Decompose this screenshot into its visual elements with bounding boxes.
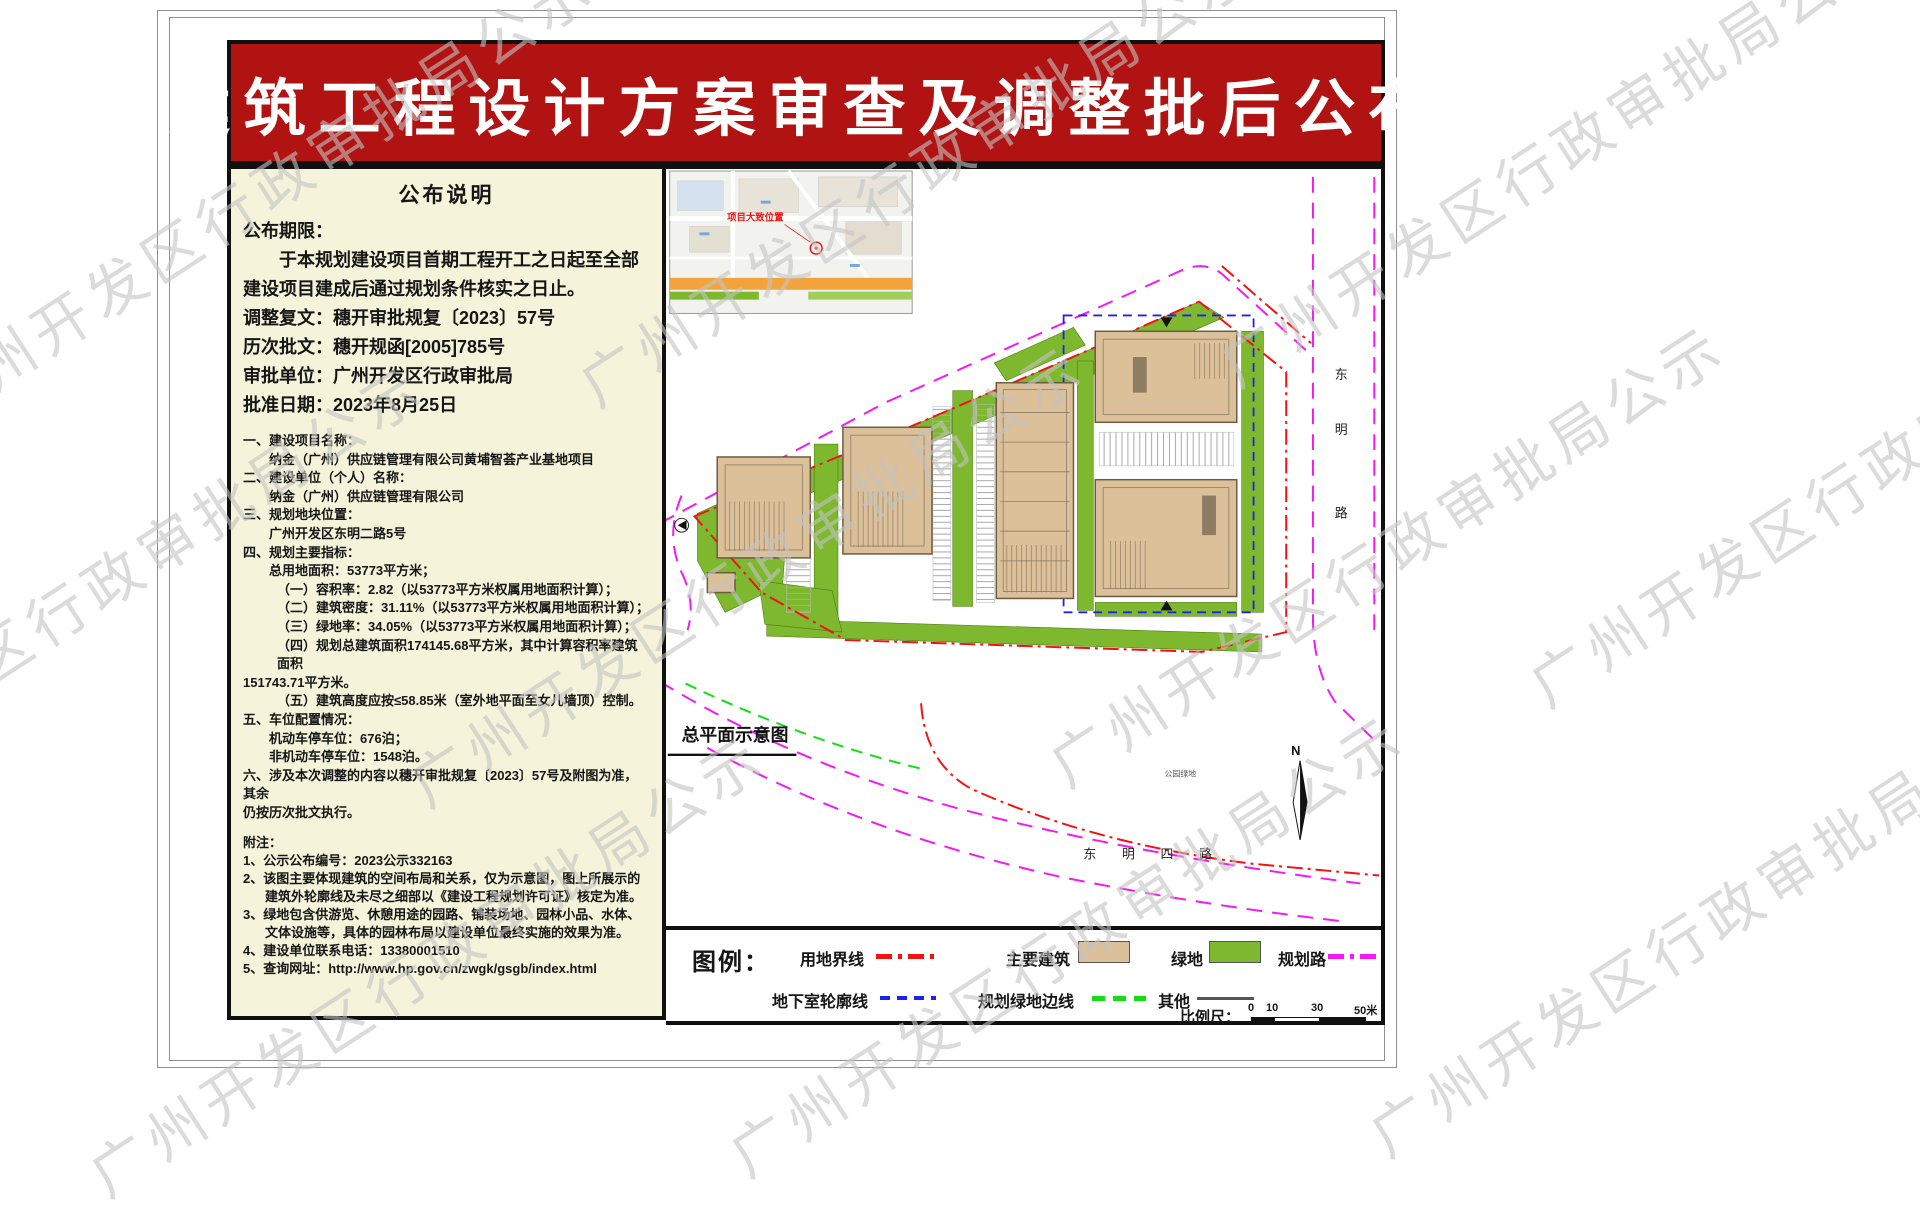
legend-label-planned-road: 规划路 <box>1278 946 1326 970</box>
map-green-verge <box>808 292 912 300</box>
list-line: 纳金（广州）供应链管理有限公司黄埔智荟产业基地项目 <box>243 451 650 470</box>
title-banner: 建筑工程设计方案审查及调整批后公布 <box>227 40 1385 165</box>
notice-title: 公布说明 <box>243 179 650 209</box>
scale-label: 比例尺： <box>1180 1006 1240 1027</box>
building-a-annex <box>707 573 735 593</box>
road-label-right-char: 明 <box>1335 422 1348 437</box>
announcement-poster: { "watermark": { "text": "广州开发区行政审批局公示" … <box>0 0 1920 1080</box>
park-green-label: 公园绿地 <box>1165 769 1197 779</box>
legend-swatch-site-boundary <box>876 954 934 959</box>
north-label: N <box>1291 743 1300 758</box>
footnote: 2、该图主要体现建筑的空间布局和关系，仅为示意图，图上所展示的建筑外轮廓线及未尽… <box>243 870 650 906</box>
list-line: 非机动车停车位：1548泊。 <box>243 748 650 767</box>
road-label-right-char: 东 <box>1335 367 1348 382</box>
legend-label-main-building: 主要建筑 <box>1006 946 1070 970</box>
list-line: 三、规划地块位置： <box>243 506 650 525</box>
north-arrow: N <box>1291 743 1307 840</box>
adjust-reply-line: 调整复文：穗开审批规复〔2023〕57号 <box>243 304 650 333</box>
site-plan-drawing: 总平面示意图 东明四路 东 明 路 公园绿地 N <box>666 169 1381 926</box>
location-map-inset: 项目大致位置 <box>670 171 912 313</box>
footnotes-label: 附注： <box>243 834 650 852</box>
previous-approval-line: 历次批文：穗开规函[2005]785号 <box>243 333 650 362</box>
legend-swatch-green-edge <box>1092 996 1146 1001</box>
footnote: 4、建设单位联系电话：13380001510 <box>243 942 650 960</box>
legend-panel: 图例： 用地界线 主要建筑 绿地 规划路 地下室轮廓线 规划绿地边线 其他 比例… <box>666 930 1385 1025</box>
list-line: 151743.71平方米。 <box>243 674 650 693</box>
list-line: （一）容积率：2.82（以53773平方米权属用地面积计算）； <box>243 581 650 600</box>
list-line: 四、规划主要指标： <box>243 544 650 563</box>
list-line: 五、车位配置情况： <box>243 711 650 730</box>
scale-bar-segment <box>1320 1017 1366 1022</box>
indicator-list: 一、建设项目名称： 纳金（广州）供应链管理有限公司黄埔智荟产业基地项目 二、建设… <box>243 432 650 822</box>
approval-date-line: 批准日期：2023年8月25日 <box>243 391 650 420</box>
list-line: 总用地面积：53773平方米； <box>243 562 650 581</box>
legend-swatch-other <box>1197 997 1254 1000</box>
legend-title: 图例： <box>692 942 770 977</box>
footnote: 3、绿地包含供游览、休憩用途的园路、铺装场地、园林小品、水体、文体设施等，具体的… <box>243 906 650 942</box>
list-line: 二、建设单位（个人）名称： <box>243 469 650 488</box>
list-line: 六、涉及本次调整的内容以穗开审批规复〔2023〕57号及附图为准，其余 <box>243 767 650 804</box>
list-line: 仍按历次批文执行。 <box>243 804 650 823</box>
scale-tick: 30 <box>1311 1002 1323 1014</box>
footnotes: 附注： 1、公示公布编号：2023公示332163 2、该图主要体现建筑的空间布… <box>243 834 650 978</box>
legend-swatch-planned-road <box>1328 954 1378 959</box>
scale-tick: 0 <box>1248 1002 1254 1014</box>
approval-authority-line: 审批单位：广州开发区行政审批局 <box>243 362 650 391</box>
poster-title: 建筑工程设计方案审查及调整批后公布 <box>169 58 1444 148</box>
legend-label-green-edge: 规划绿地边线 <box>978 988 1074 1012</box>
list-line: （二）建筑密度：31.11%（以53773平方米权属用地面积计算）； <box>243 599 650 618</box>
watermark-text: 广州开发区行政审批局公示 <box>1511 221 1920 723</box>
map-location-dot <box>815 247 818 250</box>
list-line: 一、建设项目名称： <box>243 432 650 451</box>
scale-bar-segment <box>1251 1017 1274 1022</box>
period-label: 公布期限： <box>243 217 650 246</box>
site-plan-panel: 总平面示意图 东明四路 东 明 路 公园绿地 N <box>666 165 1385 930</box>
map-green-verge <box>670 292 759 300</box>
legend-swatch-basement-outline <box>880 996 936 1000</box>
list-line: （五）建筑高度应按≤58.85米（室外地平面至女儿墙顶）控制。 <box>243 692 650 711</box>
plan-caption: 总平面示意图 <box>682 724 789 745</box>
legend-label-site-boundary: 用地界线 <box>800 946 864 970</box>
map-location-label: 项目大致位置 <box>727 211 784 222</box>
scale-tick: 10 <box>1266 1002 1278 1014</box>
watermark-text: 广州开发区行政审批局公示 <box>1351 671 1920 1173</box>
list-line: 机动车停车位：676泊； <box>243 730 650 749</box>
period-text: 于本规划建设项目首期工程开工之日起至全部建设项目建成后通过规划条件核实之日止。 <box>243 246 650 304</box>
legend-swatch-main-building <box>1078 941 1130 963</box>
legend-label-basement-outline: 地下室轮廓线 <box>772 988 868 1012</box>
scale-tick: 50米 <box>1354 1002 1377 1018</box>
road-label-right-char: 路 <box>1335 505 1348 520</box>
legend-swatch-green-space <box>1209 941 1261 963</box>
list-line: 广州开发区东明二路5号 <box>243 525 650 544</box>
list-line: （三）绿地率：34.05%（以53773平方米权属用地面积计算）； <box>243 618 650 637</box>
legend-label-green-space: 绿地 <box>1171 946 1203 970</box>
road-label-bottom: 东明四路 <box>1083 847 1237 862</box>
footnote: 1、公示公布编号：2023公示332163 <box>243 852 650 870</box>
map-major-road <box>670 278 912 290</box>
footnote: 5、查询网址：http://www.hp.gov.cn/zwgk/gsgb/in… <box>243 960 650 978</box>
scale-bar-segment <box>1274 1017 1320 1022</box>
notice-panel: 公布说明 公布期限： 于本规划建设项目首期工程开工之日起至全部建设项目建成后通过… <box>227 165 666 1020</box>
list-line: 纳金（广州）供应链管理有限公司 <box>243 488 650 507</box>
list-line: （四）规划总建筑面积174145.68平方米，其中计算容积率建筑面积 <box>243 637 650 674</box>
